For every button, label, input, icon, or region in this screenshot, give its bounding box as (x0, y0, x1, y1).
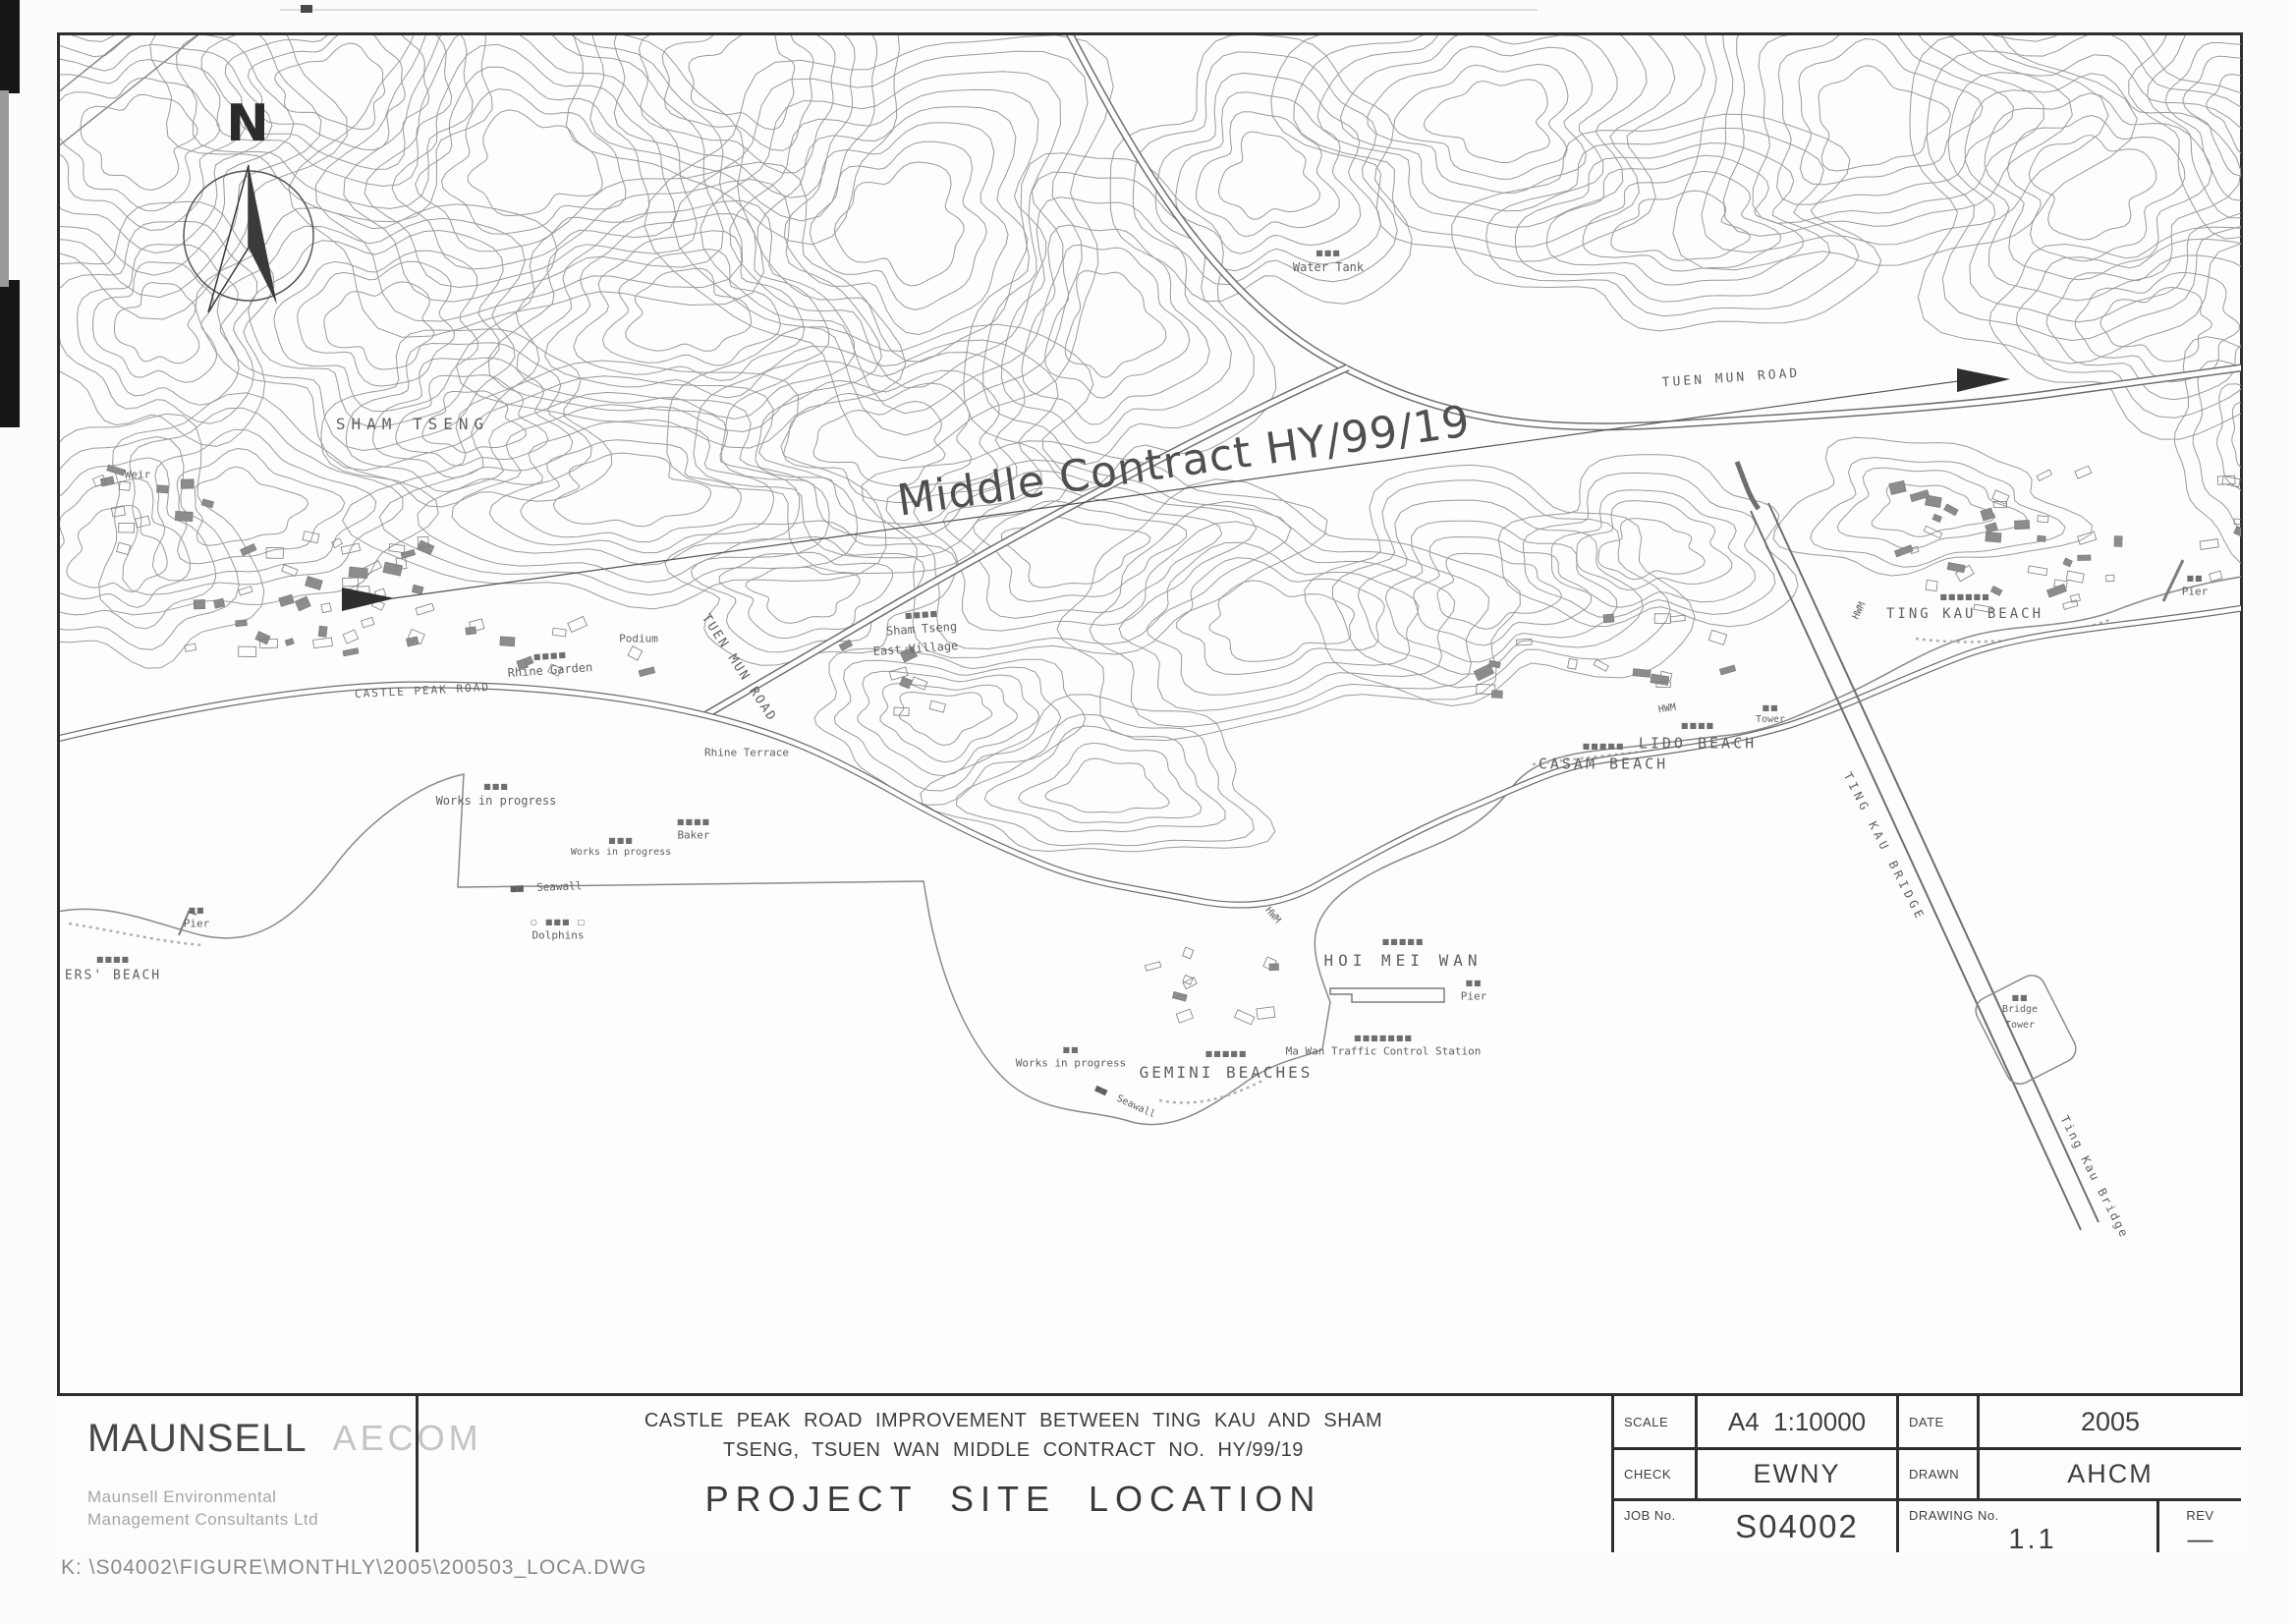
map-label-water-tank-cjk: ■■■ (1315, 250, 1341, 257)
map-label-casam-beach: CASAM BEACH (1539, 757, 1668, 772)
check-label-cell: CHECK (1614, 1450, 1695, 1498)
project-title: CASTLE PEAK ROAD IMPROVEMENT BETWEEN TIN… (416, 1396, 1611, 1465)
map-label-weir: Weir (125, 470, 151, 480)
map-label-pier-hoi-mei-wan-cjk: ■■ (1465, 980, 1482, 987)
map-label-bridge-tower-2: Tower (2005, 1021, 2035, 1031)
check-label: CHECK (1624, 1467, 1671, 1482)
map-label-tuen-mun-road-west: TUEN MUN ROAD (700, 612, 778, 724)
logo-subtitle-line1: Maunsell Environmental (87, 1486, 416, 1509)
map-label-lido-beach-cjk: ■■■■ (1681, 722, 1714, 730)
job-no-value: S04002 (1735, 1508, 1859, 1545)
project-title-line1: CASTLE PEAK ROAD IMPROVEMENT BETWEEN TIN… (416, 1406, 1611, 1435)
scale-label: SCALE (1624, 1415, 1668, 1429)
scale-value-cell: A4 1:10000 (1698, 1396, 1896, 1447)
map-label-castle-peak-road: CASTLE PEAK ROAD (355, 682, 490, 700)
map-label-hwm-tingkau: HWM (1852, 601, 1869, 622)
check-value-cell: EWNY (1698, 1450, 1896, 1498)
map-label-ting-kau-bridge-lower: Ting Kau Bridge (2058, 1114, 2131, 1241)
map-label-podium: Podium (619, 634, 658, 644)
map-label-casam-beach-cjk: ■■■■■ (1583, 743, 1625, 751)
date-value: 2005 (2081, 1407, 2140, 1437)
map-label-works-in-progress-1: Works in progress (436, 795, 557, 807)
map-label-ting-kau-beach: TING KAU BEACH (1886, 607, 2043, 621)
map-label-pier-anglers: Pier (184, 919, 210, 929)
drawing-no-label: DRAWING No. (1909, 1508, 1999, 1523)
drawn-value-cell: AHCM (1980, 1450, 2241, 1498)
map-label-seawall-1: ■■ Seawall (510, 880, 582, 894)
map-label-bakery-cjk: ■■■■ (677, 818, 710, 826)
map-label-ting-kau-beach-cjk: ■■■■■■ (1939, 593, 1989, 601)
map-label-tuen-mun-road-east: TUEN MUN ROAD (1661, 367, 1800, 390)
title-block: MAUNSELL AECOM Maunsell Environmental Ma… (57, 1393, 2243, 1552)
map-label-lido-beach: LIDO BEACH (1639, 737, 1757, 752)
map-label-pier-ting-kau-cjk: ■■ (2186, 575, 2203, 583)
map-label-hoi-mei-wan-cjk: ■■■■■ (1382, 938, 1425, 946)
map-label-works-in-progress-2: Works in progress (571, 848, 671, 858)
scale-value: A4 1:10000 (1728, 1407, 1866, 1437)
map-label-sham-tseng: SHAM TSENG (336, 417, 489, 432)
map-label-dolphins: Dolphins (532, 930, 585, 941)
map-label-ting-kau-bridge-upper: TING KAU BRIDGE (1841, 770, 1927, 923)
check-value: EWNY (1754, 1459, 1841, 1489)
map-label-pier-anglers-cjk: ■■ (188, 907, 204, 915)
map-label-sham-tseng-east-village-1-cjk: ■■■■ (905, 609, 939, 619)
map-label-rhine-terrace: Rhine Terrace (704, 748, 789, 758)
drawn-label-cell: DRAWN (1899, 1450, 1977, 1498)
logo-subtitle: Maunsell Environmental Management Consul… (87, 1486, 416, 1532)
map-label-anglers-beach-cjk: ■■■■ (96, 956, 130, 964)
drawn-label: DRAWN (1909, 1467, 1959, 1482)
map-label-rhine-garden-cjk: ■■■■ (533, 650, 568, 660)
drawn-value: AHCM (2067, 1459, 2154, 1489)
drawing-no-value: 1.1 (2008, 1524, 2056, 1556)
map-label-works-in-progress-3-cjk: ■■ (1062, 1046, 1079, 1054)
date-label: DATE (1909, 1415, 1944, 1429)
map-label-dolphins-cjk: ○ ■■■ □ (531, 919, 586, 926)
map-label-middle-contract: Middle Contract HY/99/19 (895, 400, 1474, 523)
map-label-gemini-beaches-cjk: ■■■■■ (1205, 1050, 1248, 1058)
map-label-water-tank: Water Tank (1293, 261, 1364, 273)
scale-label-cell: SCALE (1614, 1396, 1695, 1447)
rev-value: — (2188, 1524, 2213, 1554)
map-label-ma-wan-traffic-control-station-cjk: ■■■■■■■ (1354, 1035, 1413, 1042)
project-title-line2: TSENG, TSUEN WAN MIDDLE CONTRACT NO. HY/… (416, 1435, 1611, 1465)
job-label-cell: JOB No. (1614, 1501, 1695, 1552)
map-label-bridge-tower-1: Bridge (2002, 1005, 2038, 1015)
map-label-tower-upper-cjk: ■■ (1762, 704, 1778, 712)
drawing-title: PROJECT SITE LOCATION (416, 1479, 1611, 1520)
logo-subtitle-line2: Management Consultants Ltd (87, 1509, 416, 1532)
map-label-works-in-progress-2-cjk: ■■■ (608, 837, 634, 845)
map-label-hwm-lido: HWM (1657, 703, 1676, 715)
map-label-pier-hoi-mei-wan: Pier (1461, 991, 1487, 1002)
map-label-anglers-beach: ERS' BEACH (65, 970, 161, 982)
map-label-ma-wan-traffic-control-station: Ma Wan Traffic Control Station (1286, 1046, 1482, 1057)
file-path: K: \S04002\FIGURE\MONTHLY\2005\200503_LO… (61, 1556, 647, 1580)
logo-maunsell: MAUNSELL (87, 1417, 308, 1461)
map-label-pier-ting-kau: Pier (2182, 587, 2209, 597)
map-label-works-in-progress-1-cjk: ■■■ (483, 783, 509, 791)
rev-label: REV (2186, 1508, 2213, 1523)
map-label-sham-tseng-east-village-2: East Village (872, 640, 958, 657)
title-cell: CASTLE PEAK ROAD IMPROVEMENT BETWEEN TIN… (416, 1396, 1611, 1552)
drawing-no-cell: DRAWING No. 1.1 (1899, 1501, 2156, 1552)
rev-cell: REV — (2159, 1501, 2241, 1552)
map-label-north: N (226, 98, 269, 149)
map-label-hwm-gemini: HWM (1262, 906, 1281, 925)
map-labels-layer: NMiddle Contract HY/99/19SHAM TSENGWeirW… (60, 35, 2241, 1392)
job-value-cell: S04002 (1698, 1501, 1896, 1552)
map-label-works-in-progress-3: Works in progress (1016, 1058, 1127, 1069)
map-label-bakery: Baker (677, 830, 709, 841)
job-no-label: JOB No. (1624, 1508, 1676, 1523)
date-value-cell: 2005 (1980, 1396, 2241, 1447)
scanned-drawing-page: { "colors":{"paper":"#fdfdfd","frame_ink… (0, 0, 2295, 1624)
date-label-cell: DATE (1899, 1396, 1977, 1447)
map-label-gemini-beaches: GEMINI BEACHES (1140, 1065, 1314, 1081)
map-label-seawall-2: ■■ Seawall (1093, 1084, 1156, 1120)
map-label-rhine-garden: Rhine Garden (507, 661, 592, 679)
map-label-hoi-mei-wan: HOI MEI WAN (1324, 953, 1483, 969)
logo-block: MAUNSELL AECOM Maunsell Environmental Ma… (60, 1396, 416, 1552)
map-label-sham-tseng-east-village-1: Sham Tseng (886, 620, 958, 637)
map-label-bridge-tower-1-cjk: ■■ (2011, 994, 2028, 1002)
map-label-tower-upper: Tower (1756, 715, 1785, 725)
